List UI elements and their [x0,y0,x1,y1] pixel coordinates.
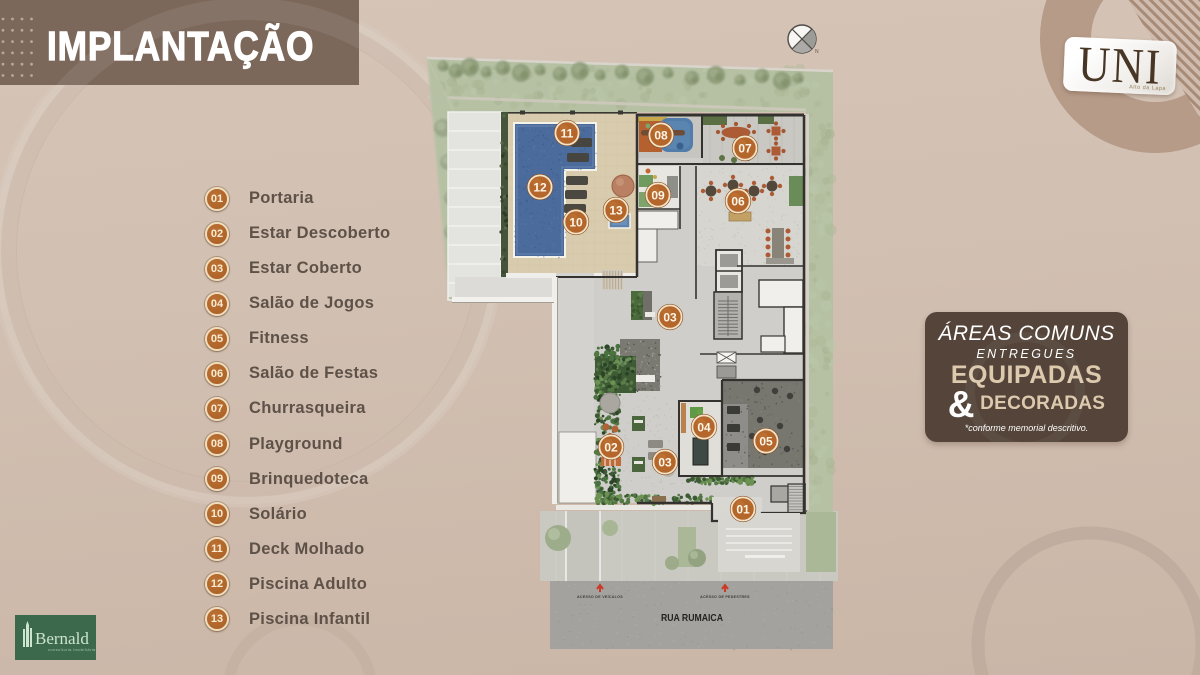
svg-text:11: 11 [561,126,574,140]
svg-text:IMPLANTAÇÃO: IMPLANTAÇÃO [47,22,314,69]
svg-text:05: 05 [759,434,773,448]
svg-text:consultoria imobiliária: consultoria imobiliária [48,647,96,652]
svg-text:10: 10 [569,215,583,229]
svg-text:ACESSO DE VEÍCULOS: ACESSO DE VEÍCULOS [577,594,623,599]
svg-text:08: 08 [654,128,668,142]
svg-text:ACESSO DE PEDESTRES: ACESSO DE PEDESTRES [700,595,750,599]
svg-text:N: N [815,49,819,55]
svg-text:03: 03 [658,455,672,469]
svg-text:Bernald: Bernald [35,629,89,648]
svg-text:04: 04 [697,420,711,434]
svg-text:02: 02 [604,440,618,454]
svg-text:03: 03 [663,310,677,324]
svg-text:06: 06 [731,194,745,208]
svg-text:01: 01 [736,502,750,516]
svg-text:RUA RUMAICA: RUA RUMAICA [661,612,723,624]
svg-text:13: 13 [609,203,623,217]
svg-text:09: 09 [651,188,665,202]
svg-text:07: 07 [738,141,752,155]
svg-text:12: 12 [533,180,547,194]
